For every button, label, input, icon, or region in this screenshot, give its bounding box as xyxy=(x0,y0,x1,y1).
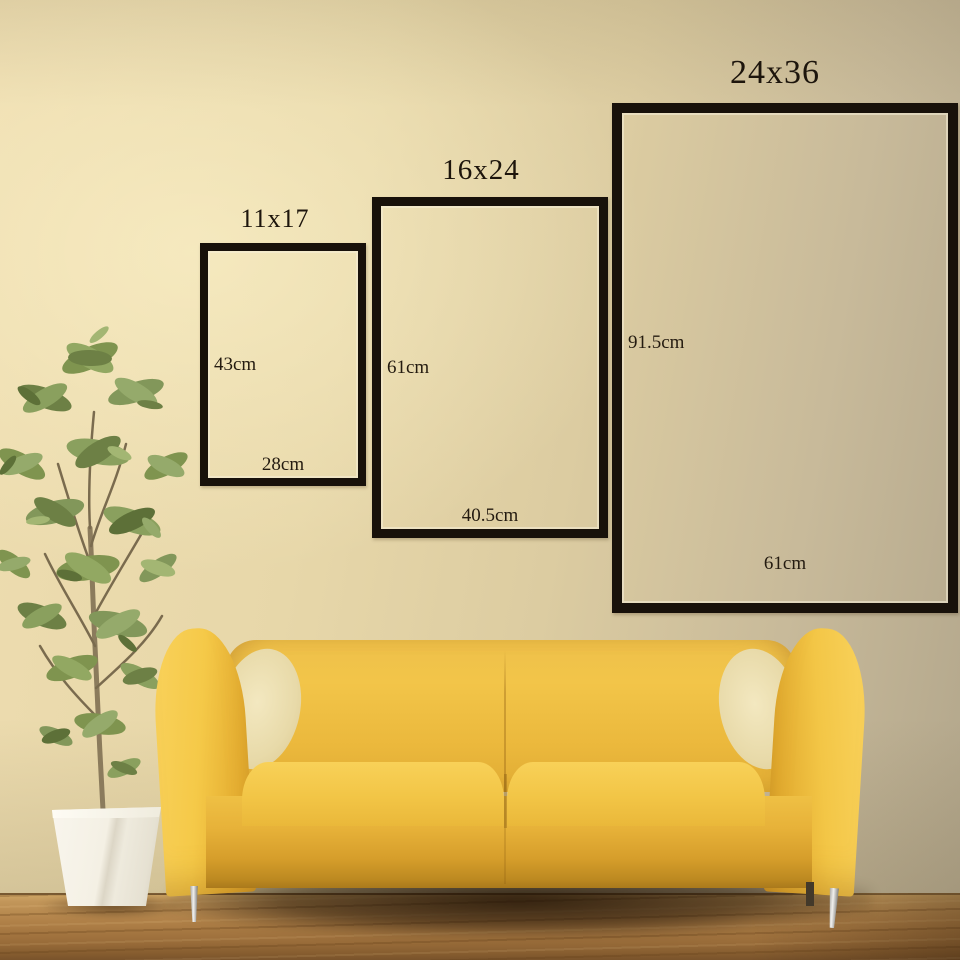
size-frame-11x17: 43cm 28cm xyxy=(200,243,366,486)
height-label-16x24: 61cm xyxy=(387,357,429,379)
size-frame-16x24: 61cm 40.5cm xyxy=(372,197,608,538)
size-frame-24x36: 91.5cm 61cm xyxy=(612,103,958,613)
sofa-seat-cushion-left xyxy=(242,762,504,826)
sofa-leg-rear xyxy=(806,882,814,906)
frame-title-16x24: 16x24 xyxy=(372,154,590,187)
sofa-seat-cushion-right xyxy=(507,762,765,826)
height-label-24x36: 91.5cm xyxy=(628,332,684,354)
frame-title-11x17: 11x17 xyxy=(200,204,350,234)
height-label-11x17: 43cm xyxy=(214,354,256,376)
sofa-seat-seam xyxy=(504,774,507,828)
room-scene: 11x17 43cm 28cm 16x24 61cm 40.5cm 24x36 … xyxy=(0,0,960,960)
width-label-24x36: 61cm xyxy=(764,553,806,575)
width-label-11x17: 28cm xyxy=(262,454,304,476)
sofa-backrest-seam xyxy=(504,650,506,792)
width-label-16x24: 40.5cm xyxy=(462,505,518,527)
frame-title-24x36: 24x36 xyxy=(612,54,938,92)
yellow-sofa xyxy=(160,624,860,930)
